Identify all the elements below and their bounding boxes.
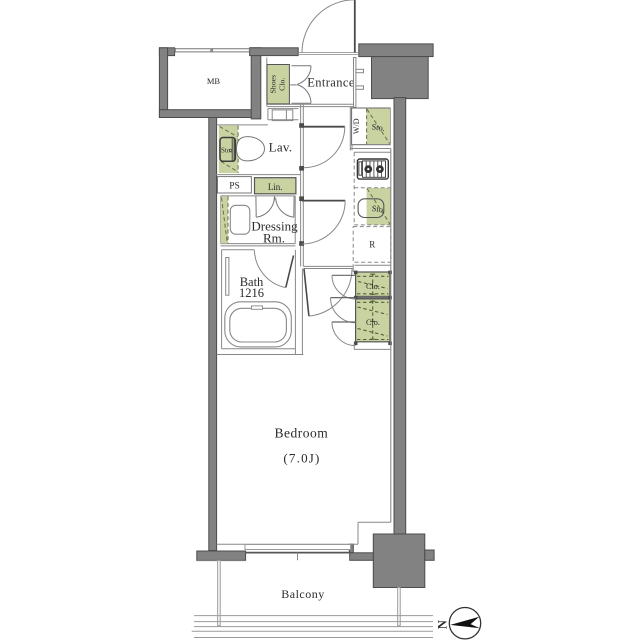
svg-text:Sto.: Sto. (371, 203, 386, 215)
svg-text:Rm.: Rm. (263, 230, 285, 245)
svg-text:Entrance: Entrance (307, 76, 355, 90)
svg-text:Balcony: Balcony (281, 587, 325, 601)
svg-text:Lin.: Lin. (268, 182, 283, 192)
svg-text:Sto.: Sto. (371, 121, 386, 133)
svg-text:1216: 1216 (239, 286, 264, 300)
svg-text:R: R (369, 240, 375, 250)
svg-text:(7.0J): (7.0J) (283, 451, 320, 466)
svg-text:Sto.: Sto. (221, 147, 232, 155)
svg-text:Bedroom: Bedroom (275, 425, 329, 440)
svg-text:PS: PS (229, 182, 240, 192)
svg-text:N: N (435, 620, 449, 629)
svg-text:W/D: W/D (352, 118, 361, 134)
svg-text:Shoes: Shoes (269, 75, 278, 94)
svg-text:Clo.: Clo. (366, 318, 380, 327)
svg-text:Clo.: Clo. (366, 282, 380, 291)
svg-text:Lav.: Lav. (269, 140, 293, 155)
svg-text:MB: MB (207, 76, 221, 86)
svg-text:Clo.: Clo. (278, 78, 287, 91)
